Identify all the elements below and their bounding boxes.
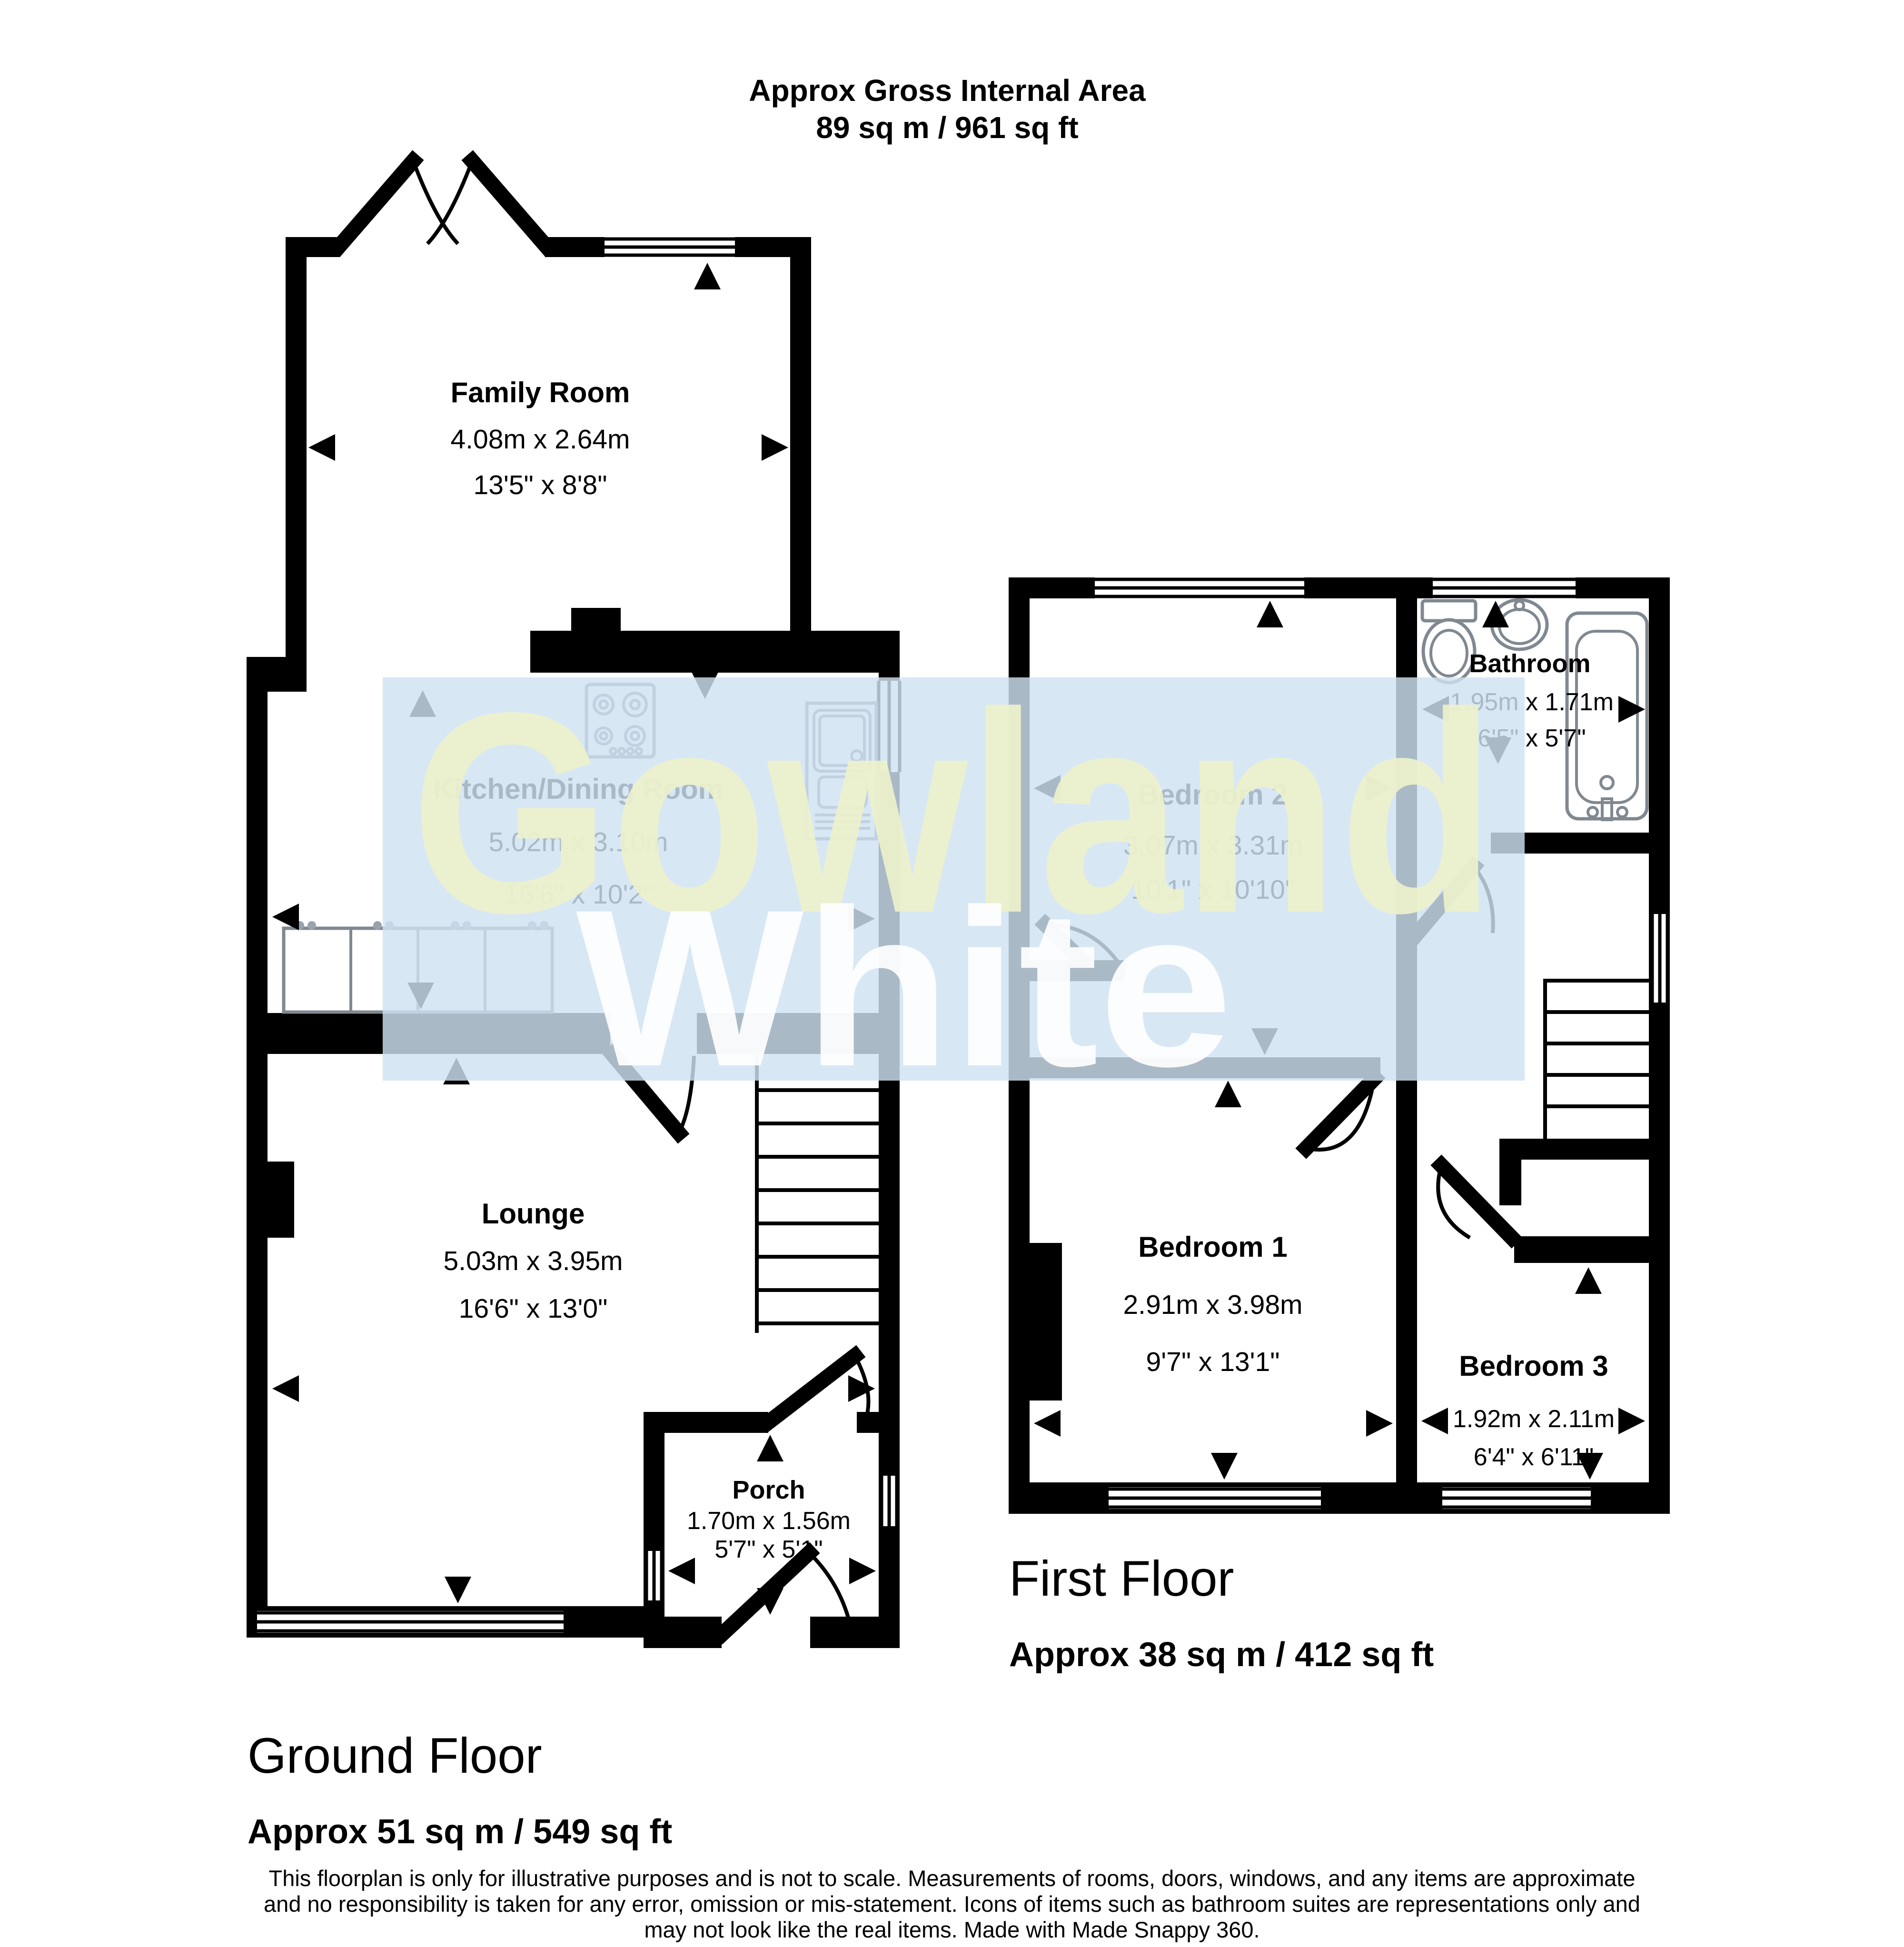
- first-floor-title: First Floor: [1009, 1551, 1234, 1607]
- arrow-right-icon: [849, 1558, 876, 1584]
- window-symbol: [257, 1611, 564, 1633]
- disclaimer-line2: and no responsibility is taken for any e…: [264, 1891, 1640, 1917]
- disclaimer-line1: This floorplan is only for illustrative …: [269, 1866, 1636, 1891]
- room-dim-imperial: 9'7" x 13'1": [1146, 1347, 1280, 1377]
- window-symbol: [880, 1476, 898, 1526]
- arrow-right-icon: [1618, 1408, 1645, 1434]
- wall: [1499, 1160, 1521, 1205]
- room-dim-imperial: 16'6" x 13'0": [459, 1293, 608, 1324]
- room-label-family-room: Family Room 4.08m x 2.64m 13'5" x 8'8": [450, 377, 630, 500]
- room-name: Lounge: [482, 1198, 585, 1230]
- wall: [644, 1412, 664, 1638]
- wall: [1649, 577, 1670, 1514]
- wall: [644, 1617, 722, 1648]
- arrow-left-icon: [1421, 1408, 1448, 1434]
- room-dim-metric: 2.91m x 3.98m: [1123, 1290, 1302, 1320]
- room-label-bedroom1: Bedroom 1 2.91m x 3.98m 9'7" x 13'1": [1123, 1231, 1302, 1377]
- disclaimer-line3: may not look like the real items. Made w…: [644, 1917, 1259, 1942]
- arrow-left-icon: [1034, 1410, 1061, 1437]
- window-symbol: [1442, 1487, 1591, 1509]
- arrow-left-icon: [668, 1558, 695, 1584]
- window-symbol: [1433, 577, 1576, 598]
- floorplan-page: { "header": { "line1": "Approx Gross Int…: [0, 0, 1904, 1947]
- ground-floor-title: Ground Floor: [248, 1728, 542, 1784]
- window-symbol: [1651, 914, 1669, 1003]
- disclaimer: This floorplan is only for illustrative …: [264, 1866, 1640, 1942]
- chimney-breast: [268, 1162, 294, 1238]
- room-dim-imperial: 6'4" x 6'11": [1474, 1443, 1594, 1471]
- room-label-bedroom3: Bedroom 3 1.92m x 2.11m 6'4" x 6'11": [1453, 1350, 1615, 1471]
- room-label-lounge: Lounge 5.03m x 3.95m 16'6" x 13'0": [443, 1198, 623, 1324]
- room-label-porch: Porch 1.70m x 1.56m 5'7" x 5'1": [687, 1476, 851, 1563]
- arrow-up-icon: [1257, 601, 1283, 627]
- bay-double-door: [339, 161, 546, 247]
- arrow-left-icon: [272, 1375, 299, 1402]
- door-swing: [1306, 1078, 1375, 1150]
- arrow-left-icon: [308, 434, 335, 461]
- room-dim-imperial: 13'5" x 8'8": [474, 470, 607, 500]
- room-dim-imperial: 5'7" x 5'1": [714, 1536, 823, 1563]
- arrow-right-icon: [1366, 1410, 1393, 1437]
- wall: [286, 237, 307, 680]
- window-symbol: [1109, 1487, 1321, 1509]
- ground-floor-area: Approx 51 sq m / 549 sq ft: [248, 1813, 672, 1851]
- room-dim-metric: 5.03m x 3.95m: [443, 1246, 623, 1276]
- wall: [247, 1054, 268, 1638]
- room-name: Porch: [732, 1476, 805, 1504]
- room-dim-metric: 1.70m x 1.56m: [687, 1507, 851, 1535]
- wall: [644, 1412, 768, 1433]
- header-line2: 89 sq m / 961 sq ft: [816, 110, 1078, 145]
- chimney-breast: [571, 608, 621, 631]
- arrow-down-icon: [445, 1577, 471, 1603]
- ground-floor-caption: Ground Floor Approx 51 sq m / 549 sq ft: [248, 1728, 672, 1851]
- arrow-right-icon: [762, 434, 788, 461]
- chimney-breast: [1030, 1243, 1062, 1401]
- room-dim-metric: 1.92m x 2.11m: [1453, 1405, 1615, 1433]
- arrow-up-icon: [694, 263, 721, 289]
- arrow-up-icon: [757, 1435, 783, 1461]
- arrow-up-icon: [1575, 1267, 1602, 1294]
- staircase: [1545, 979, 1649, 1139]
- window-symbol: [605, 237, 735, 257]
- wall: [790, 237, 811, 631]
- window-symbol: [1095, 577, 1304, 598]
- room-name: Family Room: [451, 377, 630, 408]
- watermark-line2: White: [576, 863, 1233, 1113]
- watermark: Gowland White: [383, 654, 1525, 1113]
- arrow-right-icon: [848, 1375, 875, 1402]
- arrow-down-icon: [1211, 1453, 1238, 1480]
- arrow-left-icon: [272, 904, 299, 930]
- header-line1: Approx Gross Internal Area: [749, 73, 1146, 108]
- wall: [1396, 1078, 1417, 1514]
- wall: [810, 1617, 900, 1648]
- window-symbol: [645, 1551, 663, 1600]
- wall: [1499, 1139, 1670, 1160]
- first-floor-caption: First Floor Approx 38 sq m / 412 sq ft: [1009, 1551, 1434, 1674]
- wall: [1514, 1236, 1670, 1263]
- bathtub-icon: [1567, 613, 1647, 820]
- room-name: Bedroom 1: [1138, 1231, 1287, 1263]
- floorplan-canvas: Approx Gross Internal Area 89 sq m / 961…: [0, 0, 1904, 1947]
- room-dim-metric: 4.08m x 2.64m: [450, 424, 630, 455]
- room-name: Bedroom 3: [1459, 1350, 1608, 1382]
- header: Approx Gross Internal Area 89 sq m / 961…: [749, 73, 1146, 145]
- wall: [247, 680, 268, 1013]
- first-floor-area: Approx 38 sq m / 412 sq ft: [1009, 1636, 1434, 1674]
